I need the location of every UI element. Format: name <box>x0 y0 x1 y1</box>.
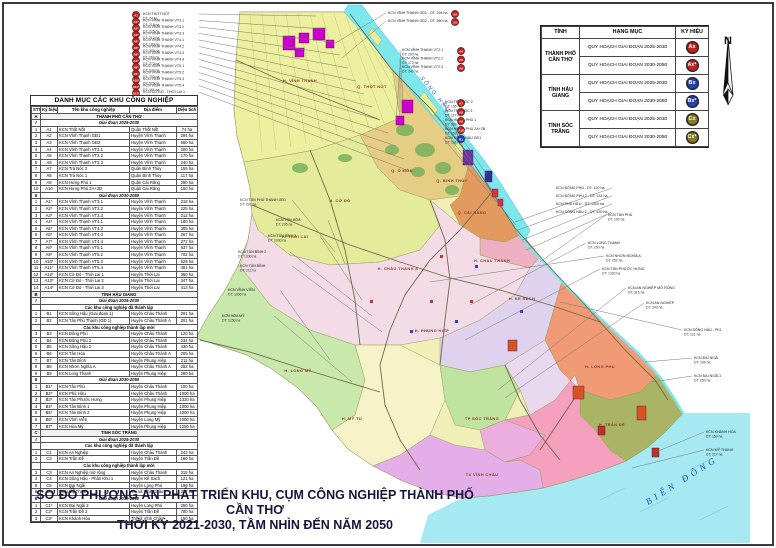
table-cell: Huyện Vĩnh Thạnh <box>130 146 177 153</box>
table-cell: 150 ha <box>177 186 198 193</box>
table-cell: 155 ha <box>177 166 198 173</box>
table-cell: Giai đoạn 2030-2050 <box>41 377 198 384</box>
table-cell: 430 ha <box>177 344 198 351</box>
table-cell: 3 <box>32 469 41 476</box>
table-cell: A4* <box>41 219 58 226</box>
table-cell: 225 ha <box>177 205 198 212</box>
table-cell: A <box>32 113 41 120</box>
callout-leader-line <box>290 252 372 316</box>
legend-row: TỈNH SÓC TRĂNGQUY HOẠCH GIAI ĐOẠN 2025-2… <box>542 111 709 129</box>
legend-col-hang-muc: HẠNG MỤC <box>580 27 676 39</box>
callout-zone-area: DT: 290 ha <box>588 245 605 249</box>
table-cell: A5 <box>41 153 58 160</box>
table-cell: 4 <box>32 146 41 153</box>
callout-badge-label: A8 <box>459 110 463 114</box>
table-cell: A6 <box>41 159 58 166</box>
callout-leader-line <box>328 220 345 264</box>
legend-col-tinh: TỈNH <box>542 27 580 39</box>
table-cell: 8 <box>32 364 41 371</box>
legend-province: THÀNH PHỐ CẦN THƠ <box>542 39 580 75</box>
callout-zone-area: DT: 121 ha <box>684 332 701 336</box>
table-cell: THÀNH PHỐ CẦN THƠ <box>41 113 198 120</box>
table-cell: 1 <box>32 311 41 318</box>
table-cell: Huyện Vĩnh Thạnh <box>130 133 177 140</box>
legend-symbol-cell: Cx <box>676 111 709 129</box>
legend-body: THÀNH PHỐ CẦN THƠQUY HOẠCH GIAI ĐOẠN 202… <box>542 39 709 147</box>
table-cell: 267 ha <box>177 232 198 239</box>
table-cell: B7* <box>41 423 58 430</box>
callout-badge-label: A7 <box>459 101 463 105</box>
callout-leader-line <box>199 92 412 172</box>
table-title: DANH MỤC CÁC KHU CÔNG NGHIỆP <box>31 96 197 106</box>
callout-badge-label: A4 <box>459 49 463 53</box>
callout-zone-name: KCN VĨNH THẠNH VT3.2 <box>143 24 184 29</box>
table-cell: B1 <box>41 311 58 318</box>
table-cell: B5* <box>41 410 58 417</box>
table-row: 9B9KCN Long ThạnhHuyện Phụng Hiệp290 ha <box>32 370 198 377</box>
table-cell: B2 <box>41 318 58 325</box>
table-cell: Huyện Vĩnh Thạnh <box>130 258 177 265</box>
table-cell: 160 ha <box>177 456 198 463</box>
table-row: BTỈNH HẬU GIANG <box>32 291 198 298</box>
callout-leader-line <box>199 60 372 108</box>
callout-badge-label: A7* <box>133 59 139 63</box>
table-cell: 290 ha <box>177 179 198 186</box>
table-row: 1A1*KCN Vĩnh Thạnh VT3.1Huyện Vĩnh Thạnh… <box>32 199 198 206</box>
legend-symbol-cell: Bx* <box>676 93 709 111</box>
table-cell: II <box>32 192 41 199</box>
legend-item-label: QUY HOẠCH GIAI ĐOẠN 2025-2030 <box>580 111 676 129</box>
table-cell: A2 <box>41 133 58 140</box>
table-cell: KCN Phú Hữu <box>58 390 130 397</box>
table-cell: KCN Tân Phú Thạnh (GĐ 1) <box>58 318 130 325</box>
table-row: 7B7KCN Tân BìnhHuyện Phụng Hiệp211 ha <box>32 357 198 364</box>
table-cell: KCN Sông Hậu - Phân Khu 1 <box>58 476 130 483</box>
table-cell: B5 <box>41 344 58 351</box>
callout-zone-area: DT: 315 ha <box>628 290 645 294</box>
table-row: ATHÀNH PHỐ CẦN THƠ <box>32 113 198 120</box>
table-cell: Huyện Thới Lai <box>130 285 177 292</box>
callout-zone-area: DT: 217 ha <box>706 452 723 456</box>
table-cell: 121 ha <box>177 476 198 483</box>
table-cell: 218 ha <box>177 199 198 206</box>
table-cell: KCN Cờ Đỏ - Thới Lai 3 <box>58 285 130 292</box>
callout-zone-name: KCN THỐT NỐT <box>143 11 171 16</box>
callout-badge-label: A2* <box>133 26 139 30</box>
table-cell: 9 <box>32 179 41 186</box>
legend-row: THÀNH PHỐ CẦN THƠQUY HOẠCH GIAI ĐOẠN 202… <box>542 39 709 57</box>
callout-leader-line <box>199 40 348 68</box>
table-cell: 4 <box>32 219 41 226</box>
table-cell: 205 ha <box>177 350 198 357</box>
table-cell: A9* <box>41 252 58 259</box>
compass-needle-icon <box>710 35 746 110</box>
table-cell: KCN Hưng Phú 1 <box>58 179 130 186</box>
legend-item-label: QUY HOẠCH GIAI ĐOẠN 2030-2050 <box>580 57 676 75</box>
legend-symbol-badge: Ax* <box>686 59 699 72</box>
table-cell: B4* <box>41 403 58 410</box>
table-row: 5A5*KCN Vĩnh Thạnh VT4.2Huyện Vĩnh Thạnh… <box>32 225 198 232</box>
callout-zone-name: KCN VĨNH THẠNH VT4.1 <box>143 37 184 42</box>
table-row: 3A3*KCN Vĩnh Thạnh VT3.3Huyện Vĩnh Thạnh… <box>32 212 198 219</box>
table-row: 3A3KCN Vĩnh Thạnh GĐ2Huyện Vĩnh Thạnh560… <box>32 139 198 146</box>
table-cell: KCN An Nghiệp <box>58 449 130 456</box>
table-cell: 14 <box>32 285 41 292</box>
table-cell: A5* <box>41 225 58 232</box>
callout-badge-label: A1* <box>133 20 139 24</box>
table-cell: 100 ha <box>177 383 198 390</box>
table-cell: KCN Hòa Mỹ <box>58 423 130 430</box>
table-cell: KCN Vĩnh Thạnh VT5.3 <box>58 258 130 265</box>
table-cell: Huyện Vĩnh Thạnh <box>130 139 177 146</box>
table-cell: 243 ha <box>177 449 198 456</box>
table-cell: Huyện Vĩnh Thạnh <box>130 212 177 219</box>
callout-zone-name: KCN AN NGHIỆP MỞ RỘNG <box>628 285 675 290</box>
table-cell: A1* <box>41 199 58 206</box>
table-cell: KCN Vĩnh Thạnh VT2.1 <box>58 146 130 153</box>
table-row: 4B4*KCN Tân Bình 1Huyện Phụng Hiệp1000 h… <box>32 403 198 410</box>
table-cell: KCN Vĩnh Thạnh VT5.4 <box>58 265 130 272</box>
district-label: H. LONG PHÚ <box>585 364 615 369</box>
callout-leader-line <box>199 79 396 146</box>
table-cell: Huyện Châu Thành <box>130 449 177 456</box>
table-row: 3C3KCN An Nghiệp mở rộngHuyện Châu Thành… <box>32 469 198 476</box>
table-cell: A9 <box>41 179 58 186</box>
callout-zone-area: DT: 211 ha <box>240 268 256 272</box>
table-cell: 12 <box>32 271 41 278</box>
table-cell: KCN Sông Hậu 2 <box>58 344 130 351</box>
callout-badge-label: A3* <box>133 33 139 37</box>
callout-zone-name: KCN PHÚ HỮU - DT: 1000 ha <box>556 201 604 206</box>
table-row: IGiai đoạn 2025-2030 <box>32 298 198 305</box>
table-row: 11A11*KCN Vĩnh Thạnh VT5.4Huyện Vĩnh Thạ… <box>32 265 198 272</box>
table-row: 8A8KCN Trà Nóc 1Quận Bình Thủy117 ha <box>32 172 198 179</box>
callout-badge-label: A6 <box>459 66 463 70</box>
legend-box: TỈNH HẠNG MỤC KÝ HIỆU THÀNH PHỐ CẦN THƠQ… <box>540 25 709 148</box>
table-cell: C1 <box>41 449 58 456</box>
table-cell: 212 ha <box>177 212 198 219</box>
table-row: 6B6KCN Tân HòaHuyện Châu Thành A205 ha <box>32 350 198 357</box>
callout-zone-name: KCN SÔNG HẬU 2 - DT: 430 ha <box>556 209 607 214</box>
callout-leader-line <box>199 66 380 120</box>
table-cell: Giai đoạn 2025-2030 <box>41 120 198 127</box>
callout-zone-area: DT: 1320 ha <box>602 271 620 275</box>
district-label: TX VĨNH CHÂU <box>466 472 498 477</box>
table-cell: Huyện Thới Lai <box>130 271 177 278</box>
table-cell: 1000 ha <box>177 390 198 397</box>
district-label: H. CỜ ĐỎ <box>329 198 350 203</box>
table-row: 4B4KCN Đông Phú 2Huyện Châu Thành234 ha <box>32 337 198 344</box>
district-label: Q. Ô MÔN <box>391 168 413 173</box>
table-row: 8B8KCN Nhơn Nghĩa AHuyện Châu Thành A252… <box>32 364 198 371</box>
callout-zone-name: KCN TÂN PHÚ <box>608 212 633 217</box>
legend-col-ky-hieu: KÝ HIỆU <box>676 27 709 39</box>
table-row: 1B1*KCN Tân PhúHuyện Châu Thành100 ha <box>32 383 198 390</box>
district-label: Q. THỐT NỐT <box>357 84 387 89</box>
table-cell: Huyện Phụng Hiệp <box>130 410 177 417</box>
legend-symbol-badge: Ax <box>686 41 699 54</box>
table-cell: 702 ha <box>177 252 198 259</box>
table-cell: Huyện Phụng Hiệp <box>130 357 177 364</box>
table-cell: KCN Vĩnh Thạnh GĐ2 <box>58 139 130 146</box>
table-cell: Huyện Vĩnh Thạnh <box>130 219 177 226</box>
izn-table-body: ATHÀNH PHỐ CẦN THƠIGiai đoạn 2025-20301A… <box>32 113 198 522</box>
table-cell: A3 <box>41 139 58 146</box>
table-cell: Huyện Vĩnh Thạnh <box>130 153 177 160</box>
district-label: H. LONG MỸ <box>284 368 311 373</box>
callout-zone-area: DT: 100 ha <box>608 217 625 221</box>
table-cell: 560 ha <box>177 139 198 146</box>
map-title-block: SƠ ĐỒ PHƯƠNG ÁN PHÁT TRIỂN KHU, CỤM CÔNG… <box>35 488 475 533</box>
callout-leader-line <box>320 236 362 300</box>
district-label: H. CHÂU THÀNH <box>474 258 510 263</box>
table-cell: KCN Tân Hòa <box>58 350 130 357</box>
callout-badge-label: A10 <box>458 128 464 132</box>
col-ten: Tên khu công nghiệp <box>58 107 130 114</box>
callout-zone-area: DT: 1250 ha <box>222 318 240 322</box>
table-row: 14A14*KCN Cờ Đỏ - Thới Lai 3Huyện Thới L… <box>32 285 198 292</box>
table-cell: Huyện Châu Thành A <box>130 318 177 325</box>
table-cell: 7 <box>32 357 41 364</box>
table-cell: 11 <box>32 265 41 272</box>
table-cell: A10 <box>41 186 58 193</box>
table-cell: Các khu công nghiệp đã thành lập <box>41 304 198 311</box>
table-cell: 1 <box>32 126 41 133</box>
callout-leader-line <box>199 14 316 16</box>
table-cell: 637 ha <box>177 245 198 252</box>
table-cell: A6* <box>41 232 58 239</box>
callout-badge-label: A5 <box>459 58 463 62</box>
table-cell: 2 <box>32 318 41 325</box>
table-cell: KCN Tân Bình 2 <box>58 410 130 417</box>
table-cell: KCN Trà Nóc 2 <box>58 166 130 173</box>
table-cell: I <box>32 120 41 127</box>
legend-symbol-cell: Cx* <box>676 129 709 147</box>
table-cell: 2 <box>32 133 41 140</box>
table-cell: 180 ha <box>177 219 198 226</box>
table-cell <box>32 443 41 450</box>
callout-zone-area: DT: 252 ha <box>606 258 623 262</box>
table-row: 3B3KCN Đông PhúHuyện Châu Thành120 ha <box>32 331 198 338</box>
table-cell: B8 <box>41 364 58 371</box>
callout-leader-line <box>430 256 604 282</box>
table-cell: KCN Long Thạnh <box>58 370 130 377</box>
table-cell: 291 ha <box>177 311 198 318</box>
table-row: 8A8*KCN Vĩnh Thạnh VT5.1Huyện Vĩnh Thạnh… <box>32 245 198 252</box>
table-row: 12A12*KCN Cờ Đỏ - Thới Lai 1Huyện Thới L… <box>32 271 198 278</box>
table-cell: 7 <box>32 423 41 430</box>
table-cell: A2* <box>41 205 58 212</box>
callout-zone-area: DT: 240 ha <box>402 69 419 73</box>
table-cell: KCN Vĩnh Thạnh VT3.2 <box>58 205 130 212</box>
table-cell: KCN Cờ Đỏ - Thới Lai 1 <box>58 271 130 278</box>
table-cell: Các khu công nghiệp thành lập mới <box>41 463 198 470</box>
table-cell: KCN Vĩnh Thạnh VT4.1 <box>58 219 130 226</box>
table-row: 7A7*KCN Vĩnh Thạnh VT4.4Huyện Vĩnh Thạnh… <box>32 238 198 245</box>
table-row: 1A1KCN Thốt NốtQuận Thốt Nốt74 ha <box>32 126 198 133</box>
table-row: 5A5KCN Vĩnh Thạnh VT2.2Huyện Vĩnh Thạnh1… <box>32 153 198 160</box>
table-row: Các khu công nghiệp thành lập mới <box>32 463 198 470</box>
table-cell: Các khu công nghiệp thành lập mới <box>41 324 198 331</box>
callout-zone-name: KCN VĨNH THẠNH VT2.2 <box>402 56 443 61</box>
table-cell: Huyện Vĩnh Thạnh <box>130 265 177 272</box>
table-cell: 350 ha <box>177 271 198 278</box>
table-row: IIGiai đoạn 2030-2050 <box>32 377 198 384</box>
district-label: H. PHỤNG HIỆP <box>415 328 449 333</box>
table-cell: Huyện Vĩnh Thạnh <box>130 199 177 206</box>
table-cell: 9 <box>32 252 41 259</box>
table-row: Các khu công nghiệp đã thành lập <box>32 304 198 311</box>
table-cell: B1* <box>41 383 58 390</box>
callout-zone-area: DT: 1000 ha <box>238 254 256 258</box>
district-label: H. MỸ TÚ <box>342 416 362 421</box>
callout-zone-name: KCN CỜ ĐỎ - THỚI LAI 1 <box>143 89 185 94</box>
table-row: Các khu công nghiệp thành lập mới <box>32 324 198 331</box>
table-cell: Huyện Phụng Hiệp <box>130 370 177 377</box>
table-cell: A7 <box>41 166 58 173</box>
col-stt: STT <box>32 107 41 114</box>
table-cell: 240 ha <box>177 159 198 166</box>
callout-leader-line <box>632 450 704 468</box>
callout-zone-name: KCN TÂN BÌNH <box>240 264 266 268</box>
legend-item-label: QUY HOẠCH GIAI ĐOẠN 2025-2030 <box>580 75 676 93</box>
callout-leader-line <box>656 432 704 452</box>
table-cell: C <box>32 430 41 437</box>
callout-zone-name: KCN VĨNH THẠNH VT5.3 <box>143 76 184 81</box>
table-cell: 8 <box>32 172 41 179</box>
table-row: 6B6*KCN Vĩnh ViễnHuyện Long Mỹ1000 ha <box>32 416 198 423</box>
callout-zone-name: KCN VĨNH THẠNH VT2.1 <box>402 47 443 52</box>
callout-leader-line <box>645 358 692 362</box>
table-cell: 2 <box>32 205 41 212</box>
table-cell: 6 <box>32 159 41 166</box>
table-cell: Huyện Phụng Hiệp <box>130 397 177 404</box>
callout-zone-name: KCN VĨNH THẠNH VT5.1 <box>143 63 184 68</box>
callout-zone-area: DT: 196 ha <box>694 360 711 364</box>
table-row: 2A2*KCN Vĩnh Thạnh VT3.2Huyện Vĩnh Thạnh… <box>32 205 198 212</box>
table-row: 7B7*KCN Hòa MỹHuyện Phụng Hiệp1250 ha <box>32 423 198 430</box>
table-cell: KCN Vĩnh Thạnh VT4.4 <box>58 238 130 245</box>
table-cell: KCN Vĩnh Thạnh GĐ1 <box>58 133 130 140</box>
table-cell: 2 <box>32 456 41 463</box>
callout-zone-name: KCN VĨNH THẠNH VT5.4 <box>143 83 184 88</box>
table-cell: B7 <box>41 357 58 364</box>
map-title-line1: SƠ ĐỒ PHƯƠNG ÁN PHÁT TRIỂN KHU, CỤM CÔNG… <box>35 488 475 518</box>
table-cell <box>32 324 41 331</box>
callout-leader-line <box>396 67 400 120</box>
table-cell: Huyện Châu Thành <box>130 337 177 344</box>
callout-zone-name: KCN MỸ THANH <box>706 447 734 452</box>
table-cell: 1250 ha <box>177 423 198 430</box>
table-cell: KCN Cờ Đỏ - Thới Lai 2 <box>58 278 130 285</box>
table-cell: 74 ha <box>177 126 198 133</box>
table-row: IIGiai đoạn 2030-2050 <box>32 192 198 199</box>
table-cell: B3* <box>41 397 58 404</box>
compass: N <box>710 35 746 125</box>
callout-zone-name: KCN VĨNH THẠNH VT3.3 <box>143 31 184 36</box>
callout-zone-area: DT: 201 ha <box>240 202 257 206</box>
table-cell: A14* <box>41 285 58 292</box>
table-cell: KCN An Nghiệp mở rộng <box>58 469 130 476</box>
callout-badge-label: A11* <box>133 85 140 89</box>
table-cell: KCN Tân Bình 1 <box>58 403 130 410</box>
callout-badge-label: A9 <box>459 119 463 123</box>
table-cell: Huyện Phụng Hiệp <box>130 423 177 430</box>
table-row: 4A4KCN Vĩnh Thạnh VT2.1Huyện Vĩnh Thạnh2… <box>32 146 198 153</box>
callout-zone-name: KCN ĐẠI NGÃI <box>694 355 718 360</box>
callout-leader-line <box>292 200 335 252</box>
table-cell: 294 ha <box>177 133 198 140</box>
table-cell: B6 <box>41 350 58 357</box>
callout-zone-name: KCN VĨNH THẠNH VT2.3 <box>402 64 443 69</box>
table-row: 9A9*KCN Vĩnh Thạnh VT5.2Huyện Vĩnh Thạnh… <box>32 252 198 259</box>
col-dia-diem: Địa điểm <box>130 107 177 114</box>
callout-badge-label: A8* <box>133 65 139 69</box>
legend-symbol-badge: Cx* <box>686 131 699 144</box>
callout-leader-line <box>292 266 382 332</box>
table-cell <box>32 463 41 470</box>
table-cell: KCN Tân Phú <box>58 383 130 390</box>
callout-zone-area: DT: 1000 ha <box>268 238 286 242</box>
table-cell: 9 <box>32 370 41 377</box>
table-cell: Huyện Vĩnh Thạnh <box>130 232 177 239</box>
table-cell: Huyện Châu Thành <box>130 331 177 338</box>
table-cell: 3 <box>32 139 41 146</box>
district-label: H. THỚI LAI <box>282 234 308 239</box>
callout-zone-name: KCN VĨNH THẠNH VT3.1 <box>143 18 184 23</box>
table-cell: KCN Trần Đề <box>58 456 130 463</box>
callout-zone-name: KCN HƯNG PHÚ 2A+2B <box>445 126 486 131</box>
callout-zone-name: KCN TÂN BÌNH 2 <box>238 250 266 254</box>
table-cell: 347 ha <box>177 278 198 285</box>
callout-leader-line <box>199 21 324 30</box>
table-cell: KCN Vĩnh Thạnh VT3.1 <box>58 199 130 206</box>
callout-zone-name: KCN VĨNH THẠNH VT4.3 <box>143 50 184 55</box>
table-cell: 1320 ha <box>177 397 198 404</box>
table-cell: Giai đoạn 2025-2030 <box>41 298 198 305</box>
callout-leader-line <box>332 13 386 45</box>
table-cell: Quận Bình Thủy <box>130 172 177 179</box>
table-cell: A1 <box>41 126 58 133</box>
table-cell: KCN Vĩnh Thạnh VT5.2 <box>58 252 130 259</box>
table-cell: 6 <box>32 350 41 357</box>
callout-leader-line <box>342 21 386 58</box>
table-cell: 234 ha <box>177 337 198 344</box>
table-cell: KCN Nhơn Nghĩa A <box>58 364 130 371</box>
table-cell: A4 <box>41 146 58 153</box>
table-cell: Huyện Châu Thành <box>130 383 177 390</box>
table-row: 5B5*KCN Tân Bình 2Huyện Phụng Hiệp1000 h… <box>32 410 198 417</box>
district-label: Q. BÌNH THỦY <box>436 178 467 183</box>
table-cell: KCN Đông Phú <box>58 331 130 338</box>
callout-badge-label: A1 <box>134 13 138 17</box>
table-cell: KCN Vĩnh Thạnh VT2.2 <box>58 153 130 160</box>
table-cell: KCN Vĩnh Thạnh VT5.1 <box>58 245 130 252</box>
table-row: 6A6KCN Vĩnh Thạnh VT2.3Huyện Vĩnh Thạnh2… <box>32 159 198 166</box>
table-cell: 4 <box>32 403 41 410</box>
callout-zone-name: KCN TÂN PHÚ THẠNH GĐ1 <box>240 197 286 202</box>
table-cell: 1 <box>32 199 41 206</box>
table-cell: A8* <box>41 245 58 252</box>
table-cell: Huyện Vĩnh Thạnh <box>130 205 177 212</box>
table-cell <box>32 304 41 311</box>
callout-leader-line <box>199 27 332 42</box>
table-cell: 5 <box>32 410 41 417</box>
industrial-zone-table: DANH MỤC CÁC KHU CÔNG NGHIỆP STT Ký hiệu… <box>30 95 198 523</box>
table-row: IGiai đoạn 2025-2030 <box>32 436 198 443</box>
callout-zone-name: KCN VĨNH THẠNH VT4.4 <box>143 57 184 62</box>
district-label: TP SÓC TRĂNG <box>465 416 499 421</box>
